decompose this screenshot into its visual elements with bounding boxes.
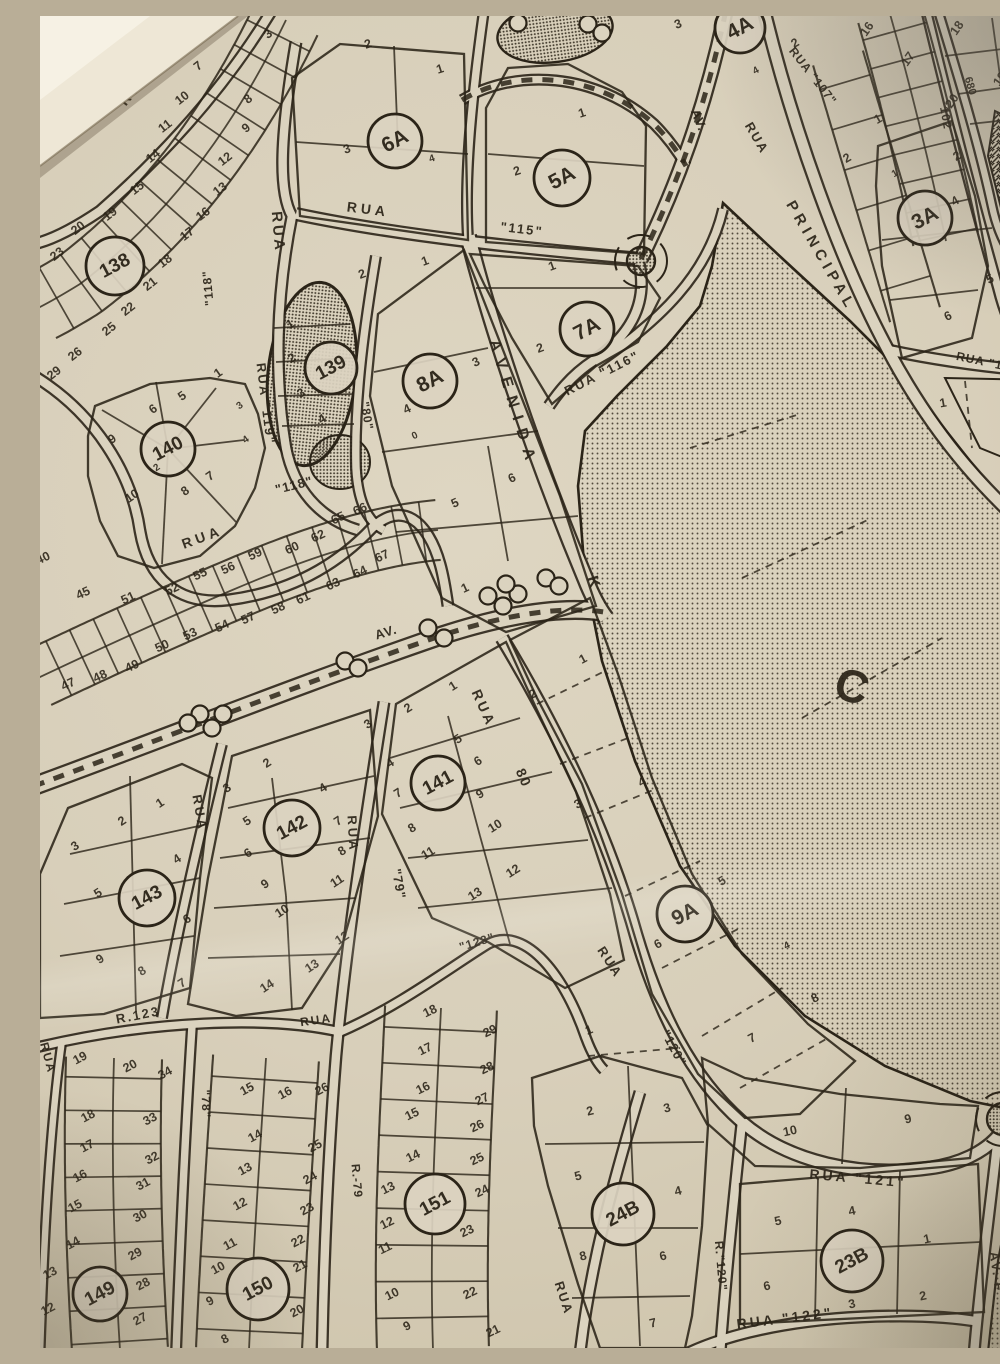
- lot-number: 8: [219, 1331, 232, 1347]
- tree-icon: [480, 588, 497, 605]
- lot-division: [376, 1245, 488, 1246]
- lot-number: 14: [257, 976, 276, 995]
- lot-division: [815, 1178, 818, 1319]
- lot-division: [65, 1077, 161, 1079]
- street-label: RUA: [469, 687, 500, 729]
- lot-number: 5: [573, 1168, 583, 1183]
- lot-number: 10: [172, 88, 192, 108]
- street-label: "118": [199, 270, 216, 307]
- roundabout-icon: [987, 1103, 1000, 1135]
- lot-division: [158, 160, 212, 204]
- lot-number: 50: [153, 637, 172, 656]
- lot-number: 1: [446, 678, 459, 694]
- lot-number: 19: [990, 69, 1000, 88]
- lot-division: [480, 836, 510, 944]
- plat-map-svg: 1381391401411421431491501516A5A4A7A8A3A9…: [40, 16, 1000, 1348]
- lot-number: 3: [261, 26, 275, 41]
- lot-division: [897, 1171, 900, 1314]
- lot-number: 32: [143, 1149, 162, 1168]
- lot-number: 6: [471, 753, 484, 769]
- lot-number: 5: [240, 813, 253, 829]
- lot-division: [702, 988, 782, 1036]
- lot-number: 26: [468, 1117, 487, 1136]
- lot-number: 4: [316, 780, 329, 796]
- lot-division: [191, 116, 249, 156]
- lot-number: 27: [473, 1090, 492, 1109]
- lot-number: 23: [298, 1200, 317, 1219]
- tree-icon: [498, 576, 515, 593]
- lot-number: 9: [258, 876, 271, 892]
- lot-number: 21: [484, 1322, 503, 1341]
- tree-icon: [594, 25, 611, 42]
- street-label: RUA: [268, 211, 289, 254]
- tree-icon: [350, 660, 367, 677]
- lot-number: 2: [534, 340, 545, 356]
- street-label: R.-79: [349, 1163, 366, 1198]
- lot-number: 45: [74, 584, 93, 603]
- lot-number: 22: [461, 1284, 480, 1303]
- street-label: AVENIDA: [485, 338, 540, 471]
- lot-number: 2: [585, 1103, 595, 1118]
- lot-number: 27: [131, 1310, 150, 1329]
- lot-number: 10: [485, 816, 504, 835]
- lot-number: 29: [126, 1245, 145, 1264]
- street-label: RUA: [552, 1279, 577, 1316]
- lot-number: 4: [383, 755, 396, 771]
- lot-number: 9: [401, 1318, 413, 1334]
- lot-number: 3: [672, 16, 683, 32]
- lot-division: [376, 1316, 488, 1318]
- lot-number: 5: [175, 388, 189, 403]
- lot-number: 51: [119, 589, 138, 608]
- lot-number: 11: [221, 1235, 239, 1254]
- lot-number: 4: [401, 401, 413, 417]
- lot-number: 9: [204, 1293, 217, 1309]
- lot-number: 33: [141, 1110, 160, 1129]
- lot-number: 18: [155, 251, 175, 271]
- lot-number: 47: [59, 675, 78, 694]
- lot-number: 1: [459, 580, 471, 596]
- lot-division: [488, 446, 508, 561]
- roundabout-icon: [627, 247, 655, 275]
- lot-number: 3: [361, 716, 374, 732]
- lot-division: [40, 268, 74, 329]
- lot-number: 6: [762, 1278, 772, 1293]
- lot-number: 12: [378, 1214, 397, 1233]
- lot-division: [117, 608, 142, 663]
- lot-number: 1: [419, 253, 430, 269]
- lot-number: 18: [79, 1107, 98, 1126]
- lot-number: 25: [99, 319, 119, 339]
- lot-division: [206, 93, 265, 131]
- lot-number: 4: [673, 1183, 683, 1198]
- lot-number: 8: [135, 963, 148, 979]
- lot-number: 54: [213, 617, 232, 636]
- lot-number: 63: [324, 575, 343, 594]
- street-label: 80: [513, 766, 536, 790]
- lot-number: 13: [210, 179, 230, 199]
- lot-number: 1: [153, 795, 166, 811]
- lot-number: 7: [746, 1030, 759, 1046]
- lot-number: 11: [376, 1239, 394, 1257]
- lot-division: [881, 276, 931, 291]
- lot-number: 15: [238, 1080, 257, 1099]
- street-label: RUA: [345, 815, 362, 853]
- lot-number: 16: [857, 19, 876, 38]
- lot-number: 19: [71, 1049, 90, 1068]
- lot-number: 2: [918, 1288, 928, 1303]
- lot-number: 4: [170, 851, 183, 867]
- lot-number: 3: [235, 400, 246, 412]
- lot-number: 17: [78, 1137, 97, 1156]
- tree-icon: [510, 16, 527, 32]
- lot-number: 6: [506, 470, 518, 486]
- lot-number: 1: [577, 105, 588, 120]
- reserve-area-c: [578, 203, 1000, 1116]
- lot-number: 7: [391, 785, 404, 801]
- lot-number: 1: [938, 395, 947, 410]
- lot-number: 3: [342, 141, 353, 156]
- lot-number: 8: [405, 820, 418, 836]
- tree-icon: [215, 706, 232, 723]
- lot-division: [740, 1038, 828, 1088]
- lot-number: 17: [416, 1040, 435, 1059]
- lot-number: 15: [403, 1105, 422, 1124]
- lot-number: 26: [65, 344, 85, 364]
- lot-number: 3: [470, 354, 482, 370]
- lot-division: [70, 824, 208, 854]
- street-label: "78": [199, 1089, 214, 1118]
- lot-number: 0: [410, 430, 420, 443]
- lot-number: 3: [220, 780, 233, 796]
- lot-number: 12: [503, 861, 522, 880]
- lot-number: 1: [435, 61, 446, 76]
- lot-number: 57: [239, 609, 258, 628]
- lot-number: 24: [301, 1169, 320, 1188]
- strip-edge: [376, 1005, 385, 1348]
- lot-number: 16: [414, 1079, 433, 1098]
- tree-icon: [436, 630, 453, 647]
- lot-number: 22: [118, 299, 138, 319]
- lot-division: [208, 954, 340, 958]
- lot-number: 10: [383, 1285, 402, 1304]
- lot-division: [537, 672, 603, 704]
- lot-number: 7: [331, 813, 344, 829]
- lot-division: [893, 140, 957, 155]
- map-photo: 1381391401411421431491501516A5A4A7A8A3A9…: [40, 16, 1000, 1348]
- lot-number: 1: [922, 1231, 932, 1246]
- lot-number: 20: [121, 1057, 140, 1076]
- lot-number: 22: [289, 1232, 308, 1251]
- lot-number: 9: [93, 951, 106, 967]
- strip-edge: [161, 1059, 168, 1346]
- lot-number: 31: [134, 1175, 153, 1194]
- lot-number: 8: [578, 1248, 588, 1263]
- lot-division: [965, 381, 972, 448]
- lot-number: 10: [209, 1259, 228, 1278]
- lot-number: 15: [66, 1197, 85, 1216]
- street-label: RUA: [742, 119, 772, 156]
- road-surface: [720, 1122, 742, 1348]
- lot-number: 2: [260, 755, 273, 771]
- lot-number: 14: [404, 1147, 423, 1166]
- lot-number: 5: [451, 731, 464, 747]
- lot-number: 13: [236, 1160, 255, 1179]
- street-label: RUA: [179, 522, 224, 552]
- lot-number: 13: [379, 1179, 398, 1198]
- lot-division: [65, 1110, 161, 1111]
- lot-number: 2: [512, 163, 523, 178]
- tree-icon: [420, 620, 437, 637]
- lot-number: 64: [351, 563, 370, 582]
- lot-number: 49: [123, 657, 142, 676]
- street-label: "115": [500, 219, 545, 239]
- lot-number: 11: [419, 844, 438, 863]
- lot-division: [140, 181, 192, 228]
- lot-number: 28: [134, 1275, 153, 1294]
- lot-number: 9: [239, 120, 253, 135]
- lot-number: 62: [309, 527, 328, 546]
- lot-number: 23: [458, 1222, 477, 1241]
- lot-number: 6: [652, 936, 665, 952]
- lot-number: 7: [203, 468, 217, 483]
- road-surface: [40, 610, 604, 786]
- tree-icon: [495, 598, 512, 615]
- street-label: RUA: [346, 198, 390, 219]
- lot-division: [900, 169, 964, 184]
- lot-number: 10: [782, 1123, 799, 1140]
- lot-number: 8: [241, 91, 255, 106]
- lot-number: 40: [40, 549, 52, 568]
- lot-number: 3: [847, 1296, 857, 1311]
- lot-number: 6: [146, 401, 160, 416]
- lot-number: 18: [421, 1002, 440, 1021]
- lot-number: 9: [903, 1111, 913, 1126]
- lot-number: 16: [71, 1167, 90, 1186]
- street-label: R."120": [712, 1240, 730, 1291]
- lot-number: 16: [276, 1084, 295, 1103]
- lot-number: 6: [658, 1248, 668, 1263]
- lot-number: 2: [401, 700, 414, 716]
- lot-division: [418, 888, 612, 908]
- lot-division: [890, 290, 978, 300]
- lot-number: 3: [662, 1100, 672, 1115]
- lot-number: 5: [773, 1213, 783, 1228]
- lot-number: 25: [306, 1137, 325, 1156]
- lot-number: 7: [648, 1315, 658, 1330]
- lot-division: [545, 1142, 704, 1144]
- lot-number: 4: [428, 153, 437, 165]
- tree-icon: [551, 578, 568, 595]
- lot-number: 13: [302, 956, 321, 975]
- street-label: AV.: [373, 622, 399, 643]
- lot-number: 11: [328, 872, 347, 891]
- lot-number: 5: [449, 495, 461, 511]
- lot-division: [70, 630, 95, 684]
- lot-division: [878, 81, 942, 97]
- lot-number: 2: [115, 813, 128, 829]
- lot-number: 12: [231, 1195, 250, 1214]
- lot-division: [93, 619, 118, 673]
- lot-number: 6: [942, 308, 954, 324]
- lot-number: 67: [373, 547, 392, 566]
- lot-division: [842, 1088, 846, 1164]
- lot-number: 25: [468, 1150, 487, 1169]
- street-label: "79": [389, 868, 409, 901]
- lot-number: 1: [577, 651, 590, 667]
- lot-number: 12: [215, 149, 235, 169]
- lot-number: 7: [191, 58, 205, 73]
- road-casing: [340, 940, 604, 1070]
- lot-number: 8: [178, 483, 192, 498]
- lot-number: 2: [363, 36, 374, 51]
- lot-number: 4: [847, 1203, 857, 1218]
- lot-number: 4: [241, 434, 252, 446]
- tree-icon: [180, 715, 197, 732]
- lot-number: 2: [356, 266, 367, 282]
- lot-number: 4: [751, 65, 762, 78]
- lot-number: 60: [283, 539, 302, 558]
